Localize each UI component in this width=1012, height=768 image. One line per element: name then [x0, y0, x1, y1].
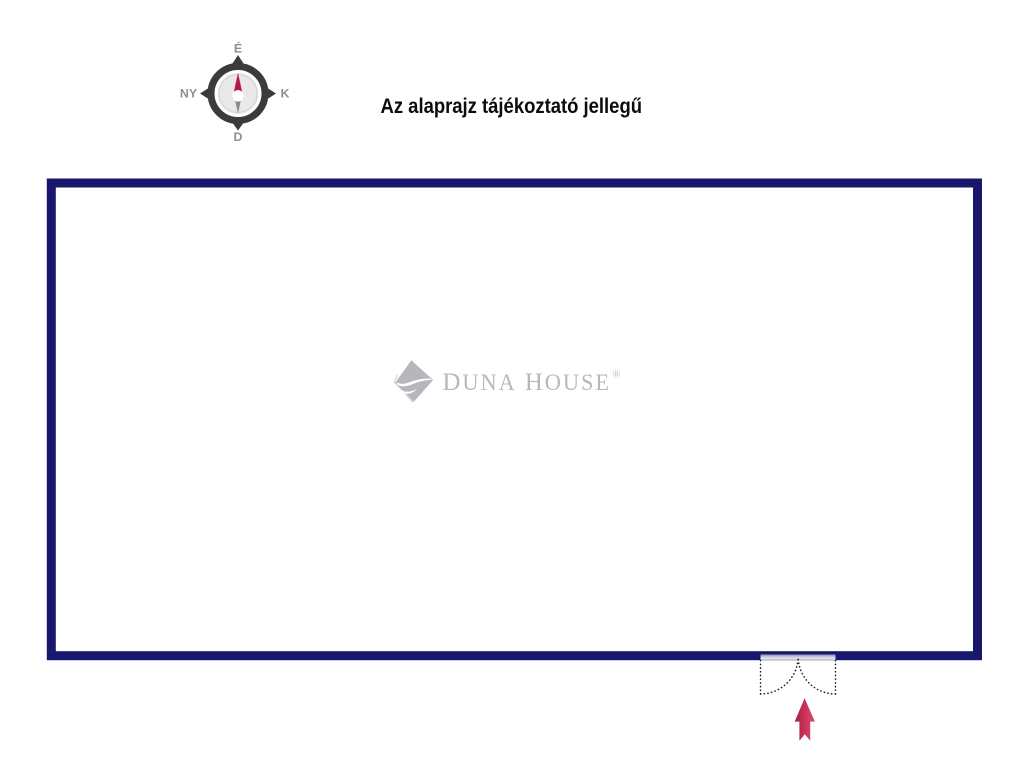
- svg-text:®: ®: [613, 370, 621, 381]
- svg-text:DUNA HOUSE: DUNA HOUSE: [443, 367, 612, 396]
- svg-text:D: D: [234, 130, 243, 144]
- svg-text:K: K: [281, 87, 290, 101]
- svg-text:Az alaprajz tájékoztató jelleg: Az alaprajz tájékoztató jellegű: [381, 95, 643, 118]
- svg-text:NY: NY: [180, 87, 198, 101]
- svg-text:É: É: [234, 41, 242, 56]
